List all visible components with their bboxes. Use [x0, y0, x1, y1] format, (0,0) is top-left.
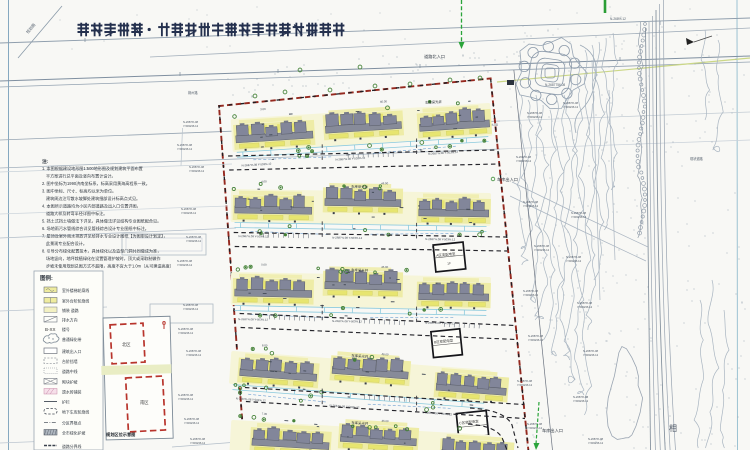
svg-text:Y-503236.12: Y-503236.12	[577, 305, 593, 309]
svg-text:46.00: 46.00	[381, 181, 389, 185]
svg-text:Y-503236.12: Y-503236.12	[523, 204, 539, 208]
svg-text:N-2687%.08: N-2687%.08	[577, 301, 592, 305]
svg-text:Y-503236.12: Y-503236.12	[183, 124, 199, 128]
svg-text:Y-503236.12: Y-503236.12	[583, 353, 599, 357]
svg-text:N-2687%.08: N-2687%.08	[527, 111, 542, 115]
svg-text:建筑出入口: 建筑出入口	[62, 349, 82, 354]
svg-text:N-2687%.08: N-2687%.08	[178, 393, 193, 397]
svg-text:场地竖向，地坪栽植绿化在设置管理护坡时，顶大或采取制做作: 场地竖向，地坪栽植绿化在设置管理护坡时，顶大或采取制做作	[46, 255, 161, 261]
svg-text:道路大样及转弯半径详图中标注。: 道路大样及转弯半径详图中标注。	[46, 210, 107, 216]
svg-text:透水砖铺装: 透水砖铺装	[62, 389, 82, 394]
svg-text:Y-503236.12: Y-503236.12	[178, 331, 194, 335]
svg-text:N-2687%.08: N-2687%.08	[573, 395, 588, 399]
svg-text:Y-503236.12: Y-503236.12	[573, 399, 589, 403]
svg-text:N-2687%.08: N-2687%.08	[186, 349, 201, 353]
svg-text:车库采光井: 车库采光井	[351, 184, 369, 189]
svg-text:1. 本图根据建设地形图1:500地形图及规划建筑平面布置: 1. 本图根据建设地形图1:500地形图及规划建筑平面布置	[42, 165, 143, 171]
svg-text:图例:: 图例:	[40, 274, 53, 282]
svg-text:Y-503236.12: Y-503236.12	[186, 239, 202, 243]
svg-text:道路中线: 道路中线	[62, 369, 78, 374]
svg-text:南区: 南区	[140, 399, 149, 405]
svg-text:Y-503236.12: Y-503236.12	[190, 441, 206, 445]
svg-text:2. 图中坐标为1990济南坐标系，标高采用黄海高程系一致。: 2. 图中坐标为1990济南坐标系，标高采用黄海高程系一致。	[42, 180, 150, 186]
svg-text:4. 本图所示道路均为小区内部道路及出入口位置详图，: 4. 本图所示道路均为小区内部道路及出入口位置详图，	[42, 203, 141, 209]
svg-text:Y-503236.12: Y-503236.12	[189, 169, 205, 173]
svg-text:N-2687%.08: N-2687%.08	[183, 303, 198, 307]
svg-text:N-2687%.08 Y-503%.12: N-2687%.08 Y-503%.12	[238, 317, 268, 322]
svg-text:N-2687%.08 Y-503%.12: N-2687%.08 Y-503%.12	[332, 319, 362, 324]
svg-text:砌块护坡: 砌块护坡	[62, 379, 78, 384]
svg-text:3. 图中坐标、尺寸、标高均以米为单位。: 3. 图中坐标、尺寸、标高均以米为单位。	[42, 188, 116, 194]
svg-text:车库出入口: 车库出入口	[497, 176, 518, 183]
svg-text:车库出入口: 车库出入口	[542, 427, 563, 434]
svg-text:Y-503236.12: Y-503236.12	[534, 248, 550, 252]
svg-text:46.00: 46.00	[381, 419, 389, 423]
svg-text:N-2687%.08: N-2687%.08	[186, 235, 201, 239]
svg-text:8. 引导分布绿化配置苗木，具体绿化以及造型门洞共同做成为准: 8. 引导分布绿化配置苗木，具体绿化以及造型门洞共同做成为准，	[42, 248, 161, 254]
svg-text:楼号: 楼号	[62, 327, 70, 332]
svg-text:Y-503236.12: Y-503236.12	[527, 426, 543, 430]
svg-text:N-2687%.08: N-2687%.08	[190, 437, 205, 441]
svg-text:N-2687%.08 Y-503%.12: N-2687%.08 Y-503%.12	[238, 234, 268, 238]
svg-text:建筑周边注写散水坡脚处建筑细部设计标高点式见。: 建筑周边注写散水坡脚处建筑细部设计标高点式见。	[46, 195, 140, 201]
svg-text:Y-503236.12: Y-503236.12	[588, 441, 604, 445]
svg-text:N-2687%.08: N-2687%.08	[516, 155, 531, 159]
svg-text:Y-503236.12: Y-503236.12	[517, 383, 533, 387]
svg-text:3.00: 3.00	[260, 107, 266, 111]
svg-text:车库采光井: 车库采光井	[351, 420, 369, 426]
svg-text:7.00: 7.00	[262, 412, 268, 416]
svg-text:Y-503236.12: Y-503236.12	[178, 397, 194, 401]
svg-text:46.00: 46.00	[380, 99, 388, 103]
svg-text:荆州路: 荆州路	[188, 90, 198, 95]
svg-text:室外台阶轮廓线: 室外台阶轮廓线	[62, 298, 89, 303]
svg-text:46.00: 46.00	[381, 265, 389, 269]
svg-text:N-2687%.08: N-2687%.08	[177, 259, 192, 263]
svg-text:4.00: 4.00	[261, 179, 267, 183]
svg-text:Y-503236.12: Y-503236.12	[177, 263, 193, 267]
svg-text:Y-503236.12: Y-503236.12	[186, 353, 202, 357]
svg-text:平方案进行总平面及竖向布置计设计。: 平方案进行总平面及竖向布置计设计。	[46, 173, 116, 179]
svg-text:Y-503236.12: Y-503236.12	[571, 215, 587, 219]
svg-text:Y-503236.12: Y-503236.12	[563, 105, 579, 109]
svg-text:全市绿化护坡: 全市绿化护坡	[62, 430, 85, 435]
svg-text:护栏: 护栏	[62, 399, 70, 404]
svg-text:道路分界线: 道路分界线	[62, 444, 82, 449]
svg-text:N-2687%.08: N-2687%.08	[178, 327, 193, 331]
svg-text:Y-503236.12: Y-503236.12	[177, 147, 193, 151]
svg-text:步坡未使用规划总图方式不超限，高度不宜大于1.0m（从可建造: 步坡未使用规划总图方式不超限，高度不宜大于1.0m（从可建造高度）	[46, 263, 174, 269]
svg-text:台阶挡墙: 台阶挡墙	[62, 359, 78, 364]
svg-text:普通绿化带: 普通绿化带	[62, 337, 82, 342]
svg-text:Y-503236.12: Y-503236.12	[566, 259, 582, 263]
svg-text:排水方向: 排水方向	[62, 317, 78, 322]
svg-text:此景观专业配合设计。: 此景观专业配合设计。	[46, 240, 87, 246]
svg-text:N-268%.12: N-268%.12	[610, 17, 626, 21]
svg-text:Y-503236.12: Y-503236.12	[527, 115, 543, 119]
svg-text:相: 相	[669, 423, 677, 433]
svg-text:N-2687%.08: N-2687%.08	[563, 101, 578, 105]
svg-text:铺装 道路: 铺装 道路	[62, 308, 79, 313]
svg-text:N-2687%.08: N-2687%.08	[583, 349, 598, 353]
svg-text:N-2687%.08: N-2687%.08	[588, 437, 603, 441]
svg-text:N-2687%.08: N-2687%.08	[571, 211, 586, 215]
svg-text:Y-503236.12: Y-503236.12	[516, 159, 532, 163]
svg-text:N-2687%.08 Y-503%.12: N-2687%.08 Y-503%.12	[332, 236, 362, 240]
svg-text:7. 屋顶及室外雨水排放详见给排水专业设计图纸【为图审设计划: 7. 屋顶及室外雨水排放详见给排水专业设计图纸【为图审设计划定】，	[42, 233, 167, 239]
svg-text:N-2687%.08: N-2687%.08	[177, 143, 192, 147]
svg-text:Y-503236.12: Y-503236.12	[181, 211, 197, 215]
svg-text:N-2687%.08: N-2687%.08	[184, 417, 199, 421]
svg-text:车库采光井: 车库采光井	[351, 267, 369, 272]
svg-text:规划区位示意图: 规划区位示意图	[106, 431, 135, 438]
svg-text:N-2687%.08: N-2687%.08	[527, 422, 542, 426]
svg-text:北区: 北区	[122, 341, 131, 348]
svg-text:46.00: 46.00	[381, 352, 389, 357]
svg-text:N-2687%.08: N-2687%.08	[517, 379, 532, 383]
svg-text:室外楼梯轮廓线: 室外楼梯轮廓线	[62, 288, 89, 293]
svg-text:注:: 注:	[42, 158, 49, 165]
svg-text:6. 场地雨污水管线综合详见管线综合设计专业图纸中标注。: 6. 场地雨污水管线综合详见管线综合设计专业图纸中标注。	[42, 225, 149, 231]
svg-text:5.00: 5.00	[261, 263, 267, 267]
svg-text:B-XX: B-XX	[45, 327, 56, 332]
svg-text:N-2687%.08: N-2687%.08	[523, 200, 538, 204]
svg-text:1F: 1F	[447, 261, 451, 265]
svg-text:分区界限点: 分区界限点	[62, 420, 82, 425]
svg-text:Y-503236.12: Y-503236.12	[183, 307, 199, 311]
svg-text:现状道路: 现状道路	[690, 156, 704, 161]
svg-text:N-2687%.08: N-2687%.08	[534, 244, 549, 248]
svg-text:N-2687%.08: N-2687%.08	[566, 255, 581, 259]
svg-text:Y-503236.12: Y-503236.12	[184, 421, 200, 425]
svg-text:N-2687%.08 Y-503%.12: N-2687%.08 Y-503%.12	[425, 237, 455, 241]
svg-text:6.00: 6.00	[262, 343, 268, 347]
svg-text:地下车库轮廓线: 地下车库轮廓线	[62, 409, 89, 414]
svg-text:5. 挡土式挡土墙做法下详见，具体做法详见结构专业图纸配合见: 5. 挡土式挡土墙做法下详见，具体做法详见结构专业图纸配合见。	[42, 218, 161, 224]
svg-text:道路北入口: 道路北入口	[424, 53, 445, 60]
svg-text:N-2687%.08: N-2687%.08	[183, 120, 198, 124]
